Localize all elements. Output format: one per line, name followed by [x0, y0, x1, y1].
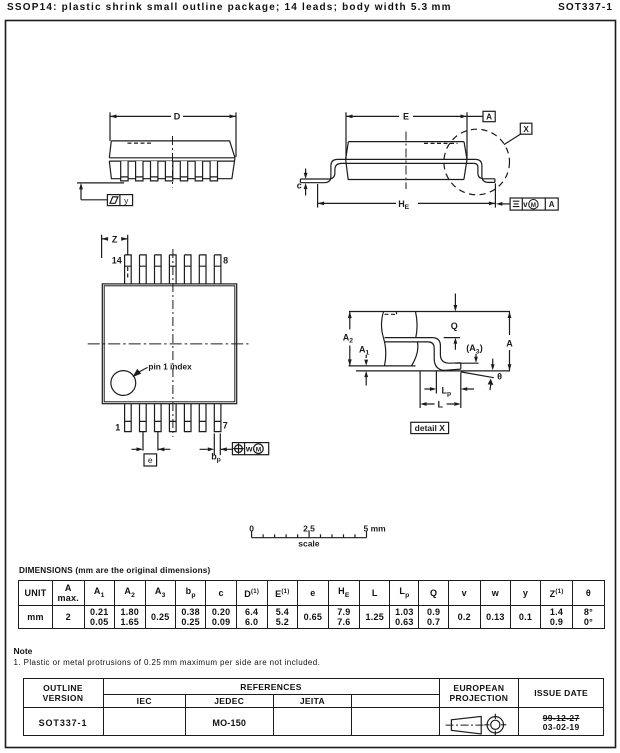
svg-text:scale: scale [298, 538, 320, 548]
svg-text:c: c [297, 180, 302, 190]
svg-text:A: A [506, 338, 513, 348]
svg-text:θ: θ [497, 372, 502, 382]
svg-text:detail X: detail X [415, 423, 446, 433]
svg-text:0: 0 [249, 523, 254, 533]
svg-text:2.5: 2.5 [303, 523, 315, 533]
svg-text:(A: (A [466, 343, 476, 353]
svg-text:w: w [245, 444, 253, 454]
svg-text:E: E [405, 204, 410, 211]
svg-text:y: y [124, 196, 129, 206]
svg-text:): ) [480, 343, 483, 353]
svg-text:1: 1 [115, 423, 120, 433]
svg-text:A: A [486, 112, 492, 121]
svg-text:2: 2 [349, 338, 353, 345]
svg-text:p: p [447, 391, 451, 398]
svg-text:14: 14 [112, 256, 122, 266]
svg-text:D: D [174, 112, 181, 122]
svg-text:M: M [256, 447, 261, 454]
svg-text:5 mm: 5 mm [364, 523, 387, 533]
svg-text:A: A [549, 200, 555, 209]
svg-text:7: 7 [223, 420, 228, 430]
svg-text:X: X [523, 125, 529, 134]
svg-text:pin 1 index: pin 1 index [148, 361, 192, 371]
svg-text:e: e [148, 455, 153, 465]
svg-text:M: M [531, 202, 536, 209]
svg-text:1: 1 [366, 349, 370, 356]
svg-text:v: v [523, 200, 528, 209]
svg-text:Z: Z [112, 234, 118, 244]
svg-text:Q: Q [451, 321, 458, 331]
svg-text:p: p [217, 457, 221, 464]
svg-text:E: E [403, 112, 409, 122]
svg-text:8: 8 [223, 256, 228, 266]
svg-text:L: L [437, 400, 443, 410]
